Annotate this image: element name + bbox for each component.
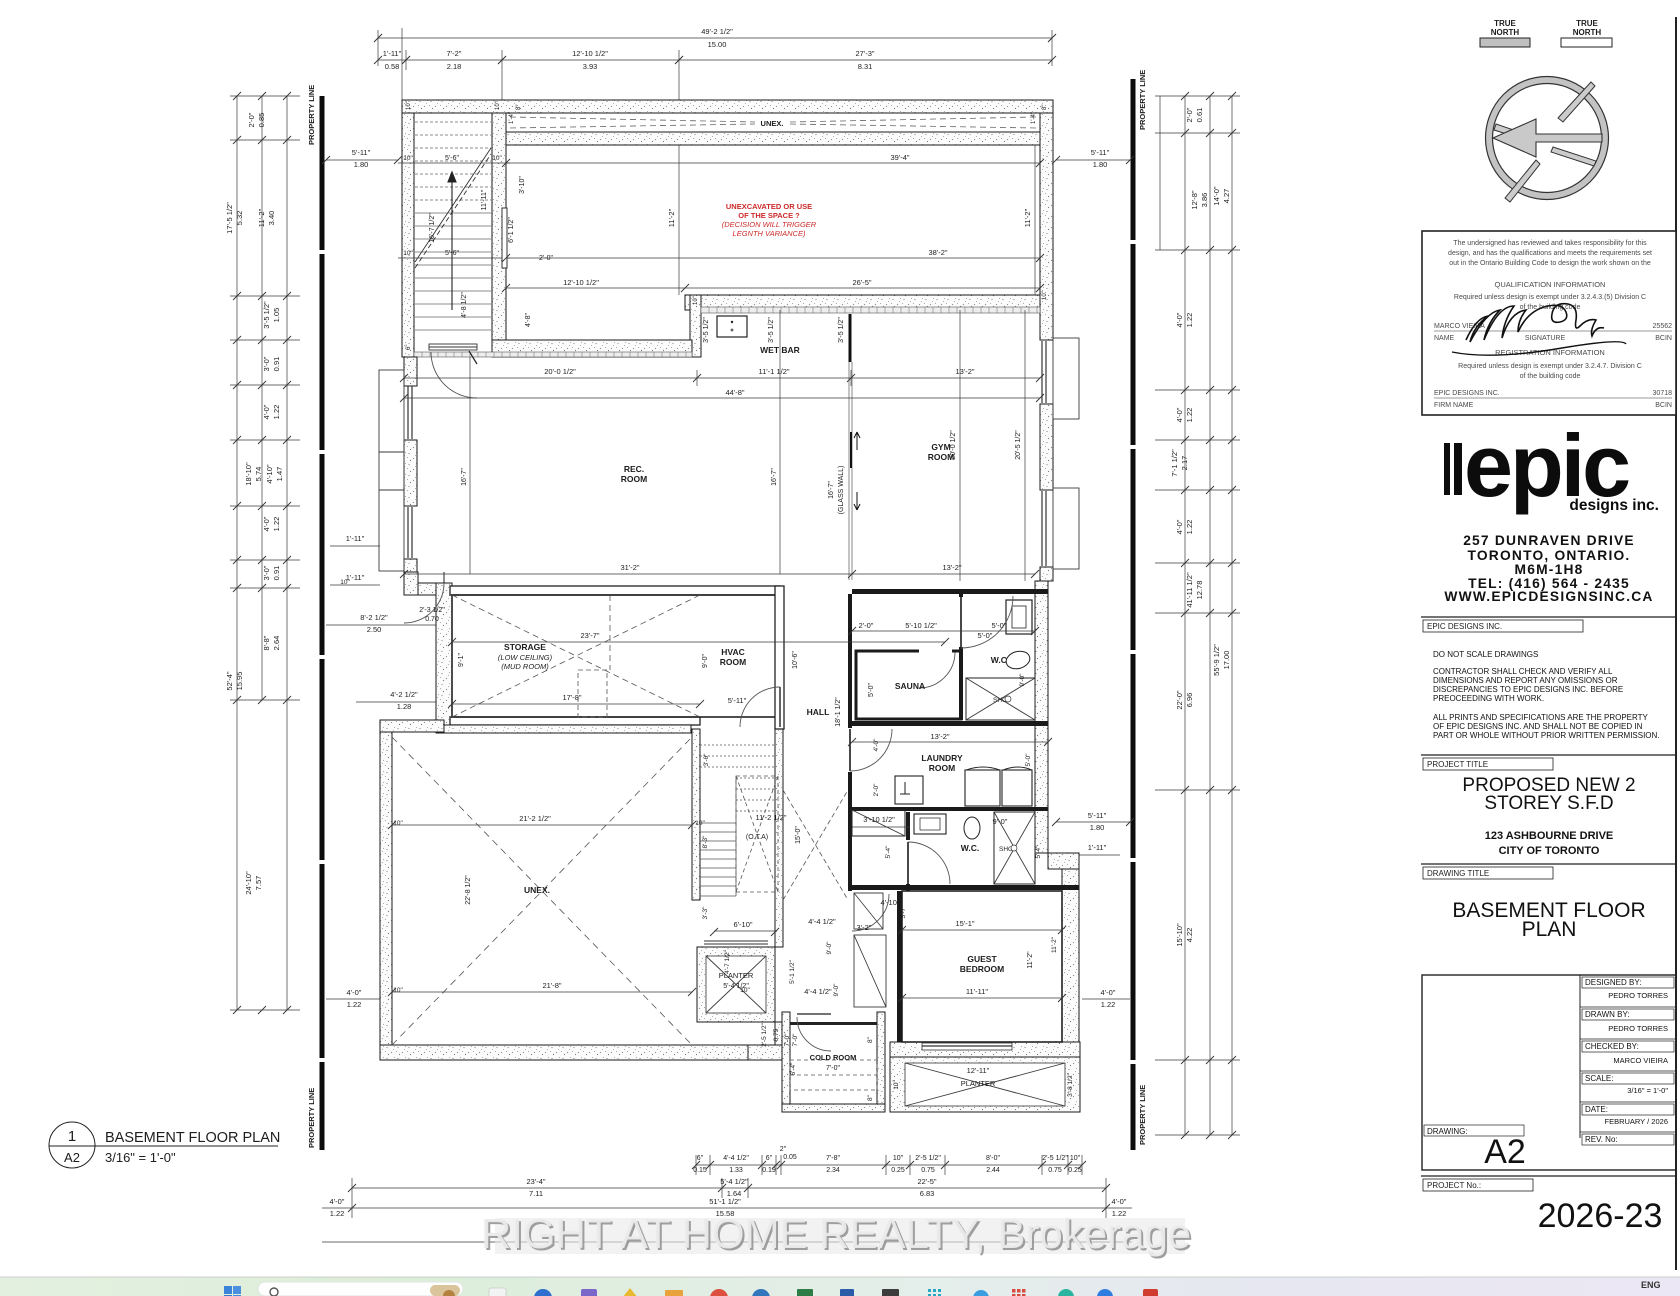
svg-text:2.18: 2.18	[447, 62, 462, 71]
svg-text:23'-4": 23'-4"	[526, 1177, 545, 1186]
svg-text:13'-2": 13'-2"	[930, 732, 949, 741]
svg-text:BASEMENT FLOOR PLAN: BASEMENT FLOOR PLAN	[105, 1130, 280, 1146]
svg-text:3/16" = 1'-0": 3/16" = 1'-0"	[1627, 1086, 1668, 1095]
svg-text:1.22: 1.22	[1185, 520, 1194, 535]
svg-text:2.34: 2.34	[826, 1167, 840, 1174]
svg-text:ENG: ENG	[1641, 1280, 1661, 1290]
svg-text:3'-0": 3'-0"	[262, 565, 271, 580]
svg-text:4'-8 1/2": 4'-8 1/2"	[461, 292, 468, 318]
svg-text:15'-10": 15'-10"	[1175, 923, 1184, 947]
svg-text:8'-2 1/2": 8'-2 1/2"	[360, 613, 388, 622]
svg-text:0.25: 0.25	[891, 1167, 905, 1174]
svg-text:PROPERTY LINE: PROPERTY LINE	[1138, 70, 1147, 130]
svg-text:44'-8": 44'-8"	[725, 388, 744, 397]
svg-text:W.C.: W.C.	[961, 843, 979, 853]
svg-text:of the building code: of the building code	[1520, 373, 1581, 380]
svg-text:4.27: 4.27	[1222, 189, 1231, 204]
svg-text:10": 10"	[403, 155, 413, 162]
svg-text:15'-0": 15'-0"	[795, 826, 802, 844]
svg-text:8": 8"	[1042, 105, 1048, 110]
svg-text:3.93: 3.93	[583, 62, 598, 71]
svg-text:20'-0 1/2": 20'-0 1/2"	[950, 430, 957, 460]
svg-text:23'-7": 23'-7"	[580, 631, 599, 640]
svg-text:PART OR WHOLE WITHOUT PRIOR WR: PART OR WHOLE WITHOUT PRIOR WRITTEN PERM…	[1433, 731, 1660, 740]
svg-text:8.31: 8.31	[858, 62, 873, 71]
svg-text:10": 10"	[495, 101, 501, 110]
svg-text:16'-7": 16'-7"	[771, 468, 778, 486]
svg-text:11'-2 1/2": 11'-2 1/2"	[755, 813, 786, 822]
svg-text:DATE:: DATE:	[1585, 1105, 1608, 1114]
svg-text:20'-5 1/2": 20'-5 1/2"	[1015, 430, 1022, 460]
svg-text:4'-4 1/2": 4'-4 1/2"	[804, 987, 832, 996]
svg-text:3'-5 1/2": 3'-5 1/2"	[838, 317, 845, 343]
svg-text:30718: 30718	[1653, 390, 1673, 397]
svg-text:3'-3": 3'-3"	[702, 906, 709, 920]
svg-text:RIGHT AT HOME REALTY, Brokerag: RIGHT AT HOME REALTY, Brokerage	[481, 1210, 1191, 1257]
svg-text:2'-0": 2'-0"	[859, 621, 874, 630]
svg-text:PEDRO TORRES: PEDRO TORRES	[1608, 991, 1668, 1000]
svg-text:TORONTO, ONTARIO.: TORONTO, ONTARIO.	[1468, 548, 1631, 563]
svg-text:5'-11": 5'-11"	[728, 696, 747, 705]
svg-text:5'-11": 5'-11"	[352, 148, 371, 157]
svg-text:ROOM: ROOM	[720, 657, 746, 667]
svg-text:10": 10"	[695, 820, 705, 827]
svg-text:BCIN: BCIN	[1655, 335, 1672, 342]
svg-text:123 ASHBOURNE DRIVE: 123 ASHBOURNE DRIVE	[1485, 830, 1614, 842]
svg-text:11'-2": 11'-2"	[257, 208, 266, 227]
svg-text:4'-4 1/2": 4'-4 1/2"	[723, 1155, 749, 1162]
svg-text:26'-5": 26'-5"	[852, 278, 871, 287]
svg-text:Required unless design is exem: Required unless design is exempt under 3…	[1458, 363, 1642, 370]
svg-text:11'-1 1/2": 11'-1 1/2"	[758, 367, 789, 376]
svg-text:5'-4": 5'-4"	[885, 845, 892, 859]
svg-text:REC.: REC.	[624, 464, 644, 474]
svg-text:ALL PRINTS AND SPECIFICATIONS: ALL PRINTS AND SPECIFICATIONS ARE THE PR…	[1433, 713, 1649, 722]
svg-text:20'-0 1/2": 20'-0 1/2"	[544, 367, 576, 376]
svg-text:(DECISION WILL TRIGGER: (DECISION WILL TRIGGER	[722, 220, 817, 229]
svg-text:7'-0": 7'-0"	[784, 1033, 791, 1047]
svg-text:PREOCEEDING WITH WORK.: PREOCEEDING WITH WORK.	[1433, 694, 1544, 703]
svg-text:4'-2 1/2": 4'-2 1/2"	[390, 690, 418, 699]
svg-text:1.22: 1.22	[347, 1000, 362, 1009]
svg-text:3/16" = 1'-0": 3/16" = 1'-0"	[105, 1150, 176, 1165]
svg-text:6": 6"	[766, 1155, 773, 1162]
svg-text:COLD ROOM: COLD ROOM	[810, 1053, 857, 1062]
svg-text:15.00: 15.00	[708, 40, 727, 49]
svg-text:4'-4 1/2": 4'-4 1/2"	[808, 917, 836, 926]
svg-text:EPIC DESIGNS INC.: EPIC DESIGNS INC.	[1427, 622, 1502, 631]
svg-text:6'-4": 6'-4"	[790, 1062, 797, 1076]
svg-text:9'-0": 9'-0"	[826, 941, 833, 955]
svg-text:1'-11": 1'-11"	[1088, 843, 1107, 852]
svg-text:0.05: 0.05	[783, 1154, 797, 1161]
svg-text:design, and has the qualificat: design, and has the qualifications and m…	[1448, 250, 1652, 257]
svg-text:MARCO VIEIRA: MARCO VIEIRA	[1613, 1056, 1668, 1065]
svg-text:DISCREPANCIES TO EPIC DESIGNS: DISCREPANCIES TO EPIC DESIGNS INC. BEFOR…	[1433, 685, 1623, 694]
svg-text:11'-2": 11'-2"	[1027, 951, 1034, 969]
svg-text:TRUE: TRUE	[1576, 19, 1598, 28]
svg-text:7'-0": 7'-0"	[792, 1033, 799, 1047]
svg-text:10": 10"	[1042, 291, 1048, 300]
svg-text:4'-0": 4'-0"	[262, 404, 271, 419]
svg-text:4'-7 1/2": 4'-7 1/2"	[724, 949, 731, 973]
svg-text:4.22: 4.22	[1185, 928, 1194, 943]
svg-text:5'-4 1/2": 5'-4 1/2"	[720, 1177, 748, 1186]
svg-text:1.28: 1.28	[397, 702, 412, 711]
svg-text:1.80: 1.80	[354, 160, 369, 169]
svg-text:6.96: 6.96	[1185, 693, 1194, 708]
svg-text:LEGNTH VARIANCE): LEGNTH VARIANCE)	[733, 229, 806, 238]
svg-text:2'-0": 2'-0"	[539, 255, 553, 262]
svg-text:15'-1": 15'-1"	[955, 919, 974, 928]
svg-text:4'-0": 4'-0"	[1101, 988, 1116, 997]
svg-text:GUEST: GUEST	[967, 954, 997, 964]
svg-text:REV. No:: REV. No:	[1585, 1135, 1618, 1144]
svg-text:12'-8": 12'-8"	[1190, 190, 1199, 209]
svg-text:13'-2": 13'-2"	[955, 367, 974, 376]
svg-text:31'-2": 31'-2"	[620, 563, 639, 572]
svg-text:3'-10 1/2": 3'-10 1/2"	[863, 815, 895, 824]
svg-text:FIRM NAME: FIRM NAME	[1434, 402, 1474, 409]
svg-text:5'-1 1/2": 5'-1 1/2"	[789, 959, 796, 983]
svg-text:HVAC: HVAC	[721, 647, 744, 657]
svg-text:ROOM: ROOM	[621, 474, 647, 484]
svg-text:BEDROOM: BEDROOM	[960, 964, 1004, 974]
svg-text:NAME: NAME	[1434, 335, 1455, 342]
svg-text:SCALE:: SCALE:	[1585, 1074, 1613, 1083]
svg-text:0.58: 0.58	[385, 62, 400, 71]
svg-text:38'-2": 38'-2"	[928, 248, 947, 257]
svg-text:1: 1	[68, 1128, 76, 1145]
svg-text:1.05: 1.05	[272, 308, 281, 323]
svg-text:8'-3": 8'-3"	[702, 835, 709, 849]
svg-text:The undersigned has reviewed a: The undersigned has reviewed and takes r…	[1453, 240, 1647, 247]
svg-text:11'-2": 11'-2"	[667, 208, 676, 227]
svg-text:2'-0": 2'-0"	[873, 783, 880, 797]
svg-text:13'-2": 13'-2"	[942, 563, 961, 572]
svg-text:10": 10"	[403, 250, 413, 257]
svg-text:12'-10 1/2": 12'-10 1/2"	[572, 49, 608, 58]
svg-text:A2: A2	[1484, 1133, 1526, 1171]
svg-text:1.80: 1.80	[1090, 823, 1105, 832]
svg-text:12'-10 1/2": 12'-10 1/2"	[563, 278, 599, 287]
svg-text:STOREY S.F.D: STOREY S.F.D	[1484, 793, 1613, 814]
svg-text:3'-7": 3'-7"	[900, 905, 907, 919]
svg-text:UNEX.: UNEX.	[761, 119, 784, 128]
svg-text:(O.T.A): (O.T.A)	[746, 834, 768, 841]
svg-text:3.86: 3.86	[1200, 193, 1209, 208]
svg-text:3.40: 3.40	[267, 211, 276, 226]
svg-text:10": 10"	[492, 155, 502, 162]
svg-text:10": 10"	[893, 1080, 900, 1090]
svg-text:OF THE SPACE ?: OF THE SPACE ?	[738, 211, 800, 220]
svg-text:11'-2": 11'-2"	[1051, 936, 1058, 953]
svg-text:DESIGNED BY:: DESIGNED BY:	[1585, 978, 1641, 987]
svg-text:6'-10": 6'-10"	[733, 920, 752, 929]
svg-text:8'-8": 8'-8"	[262, 635, 271, 650]
svg-text:1.22: 1.22	[1101, 1000, 1116, 1009]
svg-text:PROPERTY LINE: PROPERTY LINE	[307, 85, 316, 145]
svg-text:8'-0": 8'-0"	[986, 1155, 1000, 1162]
svg-text:7'-1 1/2": 7'-1 1/2"	[1170, 449, 1179, 477]
svg-text:12.78: 12.78	[1195, 581, 1204, 600]
svg-text:14'-0": 14'-0"	[1212, 186, 1221, 205]
svg-text:51'-1 1/2": 51'-1 1/2"	[709, 1197, 741, 1206]
svg-text:0.70: 0.70	[425, 616, 439, 623]
svg-text:1'-11": 1'-11"	[383, 49, 402, 58]
svg-text:1.22: 1.22	[272, 517, 281, 532]
svg-text:2.64: 2.64	[272, 636, 281, 651]
svg-text:4'-0": 4'-0"	[262, 516, 271, 531]
svg-text:designs inc.: designs inc.	[1569, 497, 1659, 514]
svg-text:12'-11": 12'-11"	[967, 1066, 990, 1075]
svg-text:9'-1": 9'-1"	[458, 653, 465, 667]
svg-text:6.83: 6.83	[920, 1189, 935, 1198]
svg-text:0.15: 0.15	[693, 1167, 707, 1174]
svg-text:SAUNA: SAUNA	[895, 681, 925, 691]
svg-text:PROPERTY LINE: PROPERTY LINE	[307, 1088, 316, 1148]
svg-text:5'-11": 5'-11"	[1088, 811, 1107, 820]
svg-text:24'-10": 24'-10"	[244, 871, 253, 895]
svg-text:4'-10": 4'-10"	[880, 898, 899, 907]
svg-text:8": 8"	[516, 105, 522, 110]
svg-text:11'-11": 11'-11"	[481, 189, 488, 210]
svg-text:1.22: 1.22	[330, 1209, 345, 1218]
svg-text:5'-6": 5'-6"	[445, 155, 459, 162]
svg-text:CONTRACTOR SHALL CHECK AND VER: CONTRACTOR SHALL CHECK AND VERIFY ALL	[1433, 667, 1613, 676]
svg-text:A2: A2	[64, 1150, 80, 1165]
svg-text:2'-5 1/2": 2'-5 1/2"	[1042, 1155, 1068, 1162]
svg-text:9'-0": 9'-0"	[1019, 673, 1026, 687]
svg-text:21'-2 1/2": 21'-2 1/2"	[519, 814, 551, 823]
svg-text:0.25: 0.25	[1068, 1167, 1082, 1174]
svg-text:2.17: 2.17	[1180, 456, 1189, 471]
svg-text:SIGNATURE: SIGNATURE	[1525, 335, 1566, 342]
svg-text:4'-0": 4'-0"	[1175, 407, 1184, 422]
svg-text:4'-0": 4'-0"	[873, 738, 880, 752]
svg-text:17.00: 17.00	[1222, 651, 1231, 670]
svg-text:1.80: 1.80	[1093, 160, 1108, 169]
svg-text:16'-7 1/2": 16'-7 1/2"	[429, 213, 436, 243]
svg-text:17'-8": 17'-8"	[562, 693, 581, 702]
svg-text:0.75: 0.75	[921, 1167, 935, 1174]
svg-text:7.11: 7.11	[529, 1189, 543, 1198]
svg-text:2'-5 1/2": 2'-5 1/2"	[915, 1155, 941, 1162]
svg-text:3'-8 1/2": 3'-8 1/2"	[1067, 1072, 1074, 1096]
svg-text:0.61: 0.61	[1195, 108, 1204, 123]
svg-text:9'-0": 9'-0"	[702, 654, 709, 668]
svg-text:22'-0": 22'-0"	[1175, 690, 1184, 709]
svg-text:DRAWN BY:: DRAWN BY:	[1585, 1010, 1630, 1019]
svg-text:10": 10"	[340, 579, 350, 586]
svg-text:5'-4": 5'-4"	[1035, 845, 1042, 859]
svg-text:5.32: 5.32	[235, 211, 244, 226]
svg-text:1'-11": 1'-11"	[346, 534, 365, 543]
svg-text:10": 10"	[893, 1155, 904, 1162]
svg-text:4'-8": 4'-8"	[525, 313, 532, 327]
svg-text:4'-0": 4'-0"	[347, 988, 362, 997]
svg-text:3'-6": 3'-6"	[703, 753, 710, 767]
svg-text:5'-10 1/2": 5'-10 1/2"	[905, 621, 937, 630]
svg-text:1.22: 1.22	[272, 405, 281, 420]
svg-text:1.22: 1.22	[1185, 408, 1194, 423]
svg-text:8": 8"	[867, 1094, 874, 1101]
svg-text:7'-2": 7'-2"	[447, 49, 462, 58]
svg-text:0.75: 0.75	[773, 1028, 780, 1041]
svg-text:257 DUNRAVEN DRIVE: 257 DUNRAVEN DRIVE	[1463, 533, 1635, 548]
svg-text:4'-0": 4'-0"	[330, 1197, 345, 1206]
svg-text:55'-9 1/2": 55'-9 1/2"	[1212, 644, 1221, 676]
svg-text:WWW.EPICDESIGNSINC.CA: WWW.EPICDESIGNSINC.CA	[1444, 589, 1653, 604]
svg-text:CHECKED BY:: CHECKED BY:	[1585, 1042, 1639, 1051]
svg-text:11'-2": 11'-2"	[1023, 208, 1032, 227]
svg-text:2026-23: 2026-23	[1538, 1197, 1663, 1235]
svg-text:3'-2": 3'-2"	[857, 923, 872, 932]
svg-text:PROPERTY LINE: PROPERTY LINE	[1138, 1085, 1147, 1145]
svg-text:8": 8"	[867, 1036, 874, 1043]
svg-text:0.91: 0.91	[272, 566, 281, 581]
svg-text:5'-4 1/2": 5'-4 1/2"	[723, 983, 749, 990]
svg-text:FEBRUARY / 2026: FEBRUARY / 2026	[1604, 1117, 1668, 1126]
svg-text:4'-10": 4'-10"	[265, 464, 274, 483]
svg-text:UNEXCAVATED OR USE: UNEXCAVATED OR USE	[726, 202, 812, 211]
svg-text:2'-0": 2'-0"	[1185, 107, 1194, 122]
svg-text:3'-0": 3'-0"	[262, 356, 271, 371]
svg-text:6'-1 1/2": 6'-1 1/2"	[508, 217, 515, 243]
svg-text:ROOM: ROOM	[929, 763, 955, 773]
svg-text:M6M-1H8: M6M-1H8	[1515, 562, 1584, 577]
svg-text:27'-3": 27'-3"	[855, 49, 874, 58]
svg-text:1'-4": 1'-4"	[1031, 112, 1037, 124]
svg-text:2": 2"	[780, 1146, 787, 1153]
svg-text:PROJECT TITLE: PROJECT TITLE	[1427, 760, 1488, 769]
svg-text:(LOW CEILING): (LOW CEILING)	[498, 653, 553, 662]
svg-text:BCIN: BCIN	[1655, 402, 1672, 409]
svg-text:LAUNDRY: LAUNDRY	[921, 753, 963, 763]
svg-text:18'-10": 18'-10"	[244, 462, 253, 486]
svg-text:41'-11 1/2": 41'-11 1/2"	[1185, 572, 1194, 608]
svg-text:3'-10": 3'-10"	[519, 176, 526, 194]
svg-text:10": 10"	[406, 101, 412, 110]
svg-text:49'-2 1/2": 49'-2 1/2"	[701, 27, 733, 36]
svg-text:39'-4": 39'-4"	[890, 153, 909, 162]
svg-text:5'-0": 5'-0"	[992, 621, 1007, 630]
svg-text:Required unless design is exem: Required unless design is exempt under 3…	[1454, 294, 1646, 301]
svg-text:STORAGE: STORAGE	[504, 642, 546, 652]
svg-text:22'-5": 22'-5"	[917, 1177, 936, 1186]
svg-text:17'-5 1/2": 17'-5 1/2"	[225, 202, 234, 234]
svg-text:16'-7": 16'-7"	[828, 481, 835, 499]
svg-text:9'-0": 9'-0"	[993, 817, 1008, 826]
svg-text:(GLASS WALL): (GLASS WALL)	[838, 466, 845, 515]
svg-text:(MUD ROOM): (MUD ROOM)	[501, 662, 549, 671]
svg-text:25562: 25562	[1653, 323, 1673, 330]
svg-text:PLAN: PLAN	[1522, 918, 1577, 941]
svg-text:PROJECT No.:: PROJECT No.:	[1427, 1181, 1481, 1190]
svg-text:5'-11": 5'-11"	[1091, 148, 1110, 157]
svg-text:NORTH: NORTH	[1573, 28, 1602, 37]
svg-text:2.50: 2.50	[367, 625, 382, 634]
svg-text:5.74: 5.74	[254, 467, 263, 482]
svg-text:18'-1 1/2": 18'-1 1/2"	[835, 697, 842, 727]
svg-text:0.19: 0.19	[762, 1167, 776, 1174]
svg-text:5'-0": 5'-0"	[1025, 753, 1032, 767]
svg-text:1'-4": 1'-4"	[509, 112, 515, 124]
svg-text:DRAWING:: DRAWING:	[1427, 1127, 1468, 1136]
svg-text:DRAWING TITLE: DRAWING TITLE	[1427, 869, 1489, 878]
svg-text:16'-7": 16'-7"	[461, 468, 468, 486]
svg-text:3'-5 1/2": 3'-5 1/2"	[262, 301, 271, 329]
svg-text:2'-0": 2'-0"	[247, 112, 256, 127]
svg-text:1.22: 1.22	[1185, 313, 1194, 328]
svg-text:QUALIFICATION INFORMATION: QUALIFICATION INFORMATION	[1495, 280, 1606, 289]
svg-text:52'-4": 52'-4"	[225, 671, 234, 690]
svg-text:5'-0": 5'-0"	[868, 683, 875, 697]
svg-text:DO NOT SCALE DRAWINGS: DO NOT SCALE DRAWINGS	[1433, 650, 1538, 659]
svg-text:22'-8 1/2": 22'-8 1/2"	[465, 875, 472, 905]
svg-text:10'-6": 10'-6"	[792, 651, 799, 669]
svg-text:CITY OF TORONTO: CITY OF TORONTO	[1499, 845, 1600, 857]
svg-text:4'-0": 4'-0"	[1175, 519, 1184, 534]
svg-text:PLANTER: PLANTER	[961, 1079, 996, 1088]
svg-text:5'-6": 5'-6"	[445, 250, 459, 257]
svg-text:0.85: 0.85	[257, 113, 266, 128]
svg-text:HALL: HALL	[807, 707, 830, 717]
svg-text:3'-5 1/2": 3'-5 1/2"	[703, 317, 710, 343]
svg-text:6": 6"	[406, 345, 412, 350]
svg-text:10": 10"	[393, 820, 403, 827]
svg-text:2'-3 1/2": 2'-3 1/2"	[419, 607, 445, 614]
svg-text:GYM: GYM	[931, 442, 950, 452]
svg-text:6": 6"	[697, 1155, 704, 1162]
svg-text:out in the Ontario Building Co: out in the Ontario Building Code to desi…	[1449, 260, 1651, 267]
svg-text:7'-0": 7'-0"	[826, 1065, 840, 1072]
svg-text:DIMENSIONS AND REPORT ANY OMIS: DIMENSIONS AND REPORT ANY OMISSIONS OR	[1433, 676, 1618, 685]
svg-text:OF EPIC DESIGNS INC. AND SHALL: OF EPIC DESIGNS INC. AND SHALL NOT BE CO…	[1433, 722, 1643, 731]
svg-text:4'-0": 4'-0"	[1175, 312, 1184, 327]
svg-text:TRUE: TRUE	[1494, 19, 1516, 28]
svg-text:10": 10"	[693, 296, 699, 305]
svg-text:15.95: 15.95	[235, 672, 244, 691]
svg-text:11'-11": 11'-11"	[966, 987, 989, 996]
svg-text:9'-0": 9'-0"	[833, 983, 840, 997]
svg-text:7'-8": 7'-8"	[826, 1155, 840, 1162]
svg-text:2'-5 1/2": 2'-5 1/2"	[761, 1022, 768, 1046]
svg-text:1.47: 1.47	[275, 467, 284, 482]
svg-text:10": 10"	[393, 987, 403, 994]
svg-text:EPIC DESIGNS INC.: EPIC DESIGNS INC.	[1434, 390, 1500, 397]
svg-text:7.57: 7.57	[254, 876, 263, 891]
svg-text:3'-5 1/2": 3'-5 1/2"	[768, 317, 775, 343]
svg-text:0.75: 0.75	[1048, 1167, 1062, 1174]
svg-text:0.91: 0.91	[272, 357, 281, 372]
svg-text:UNEX.: UNEX.	[524, 885, 550, 895]
svg-text:21'-8": 21'-8"	[542, 981, 561, 990]
svg-text:PEDRO TORRES: PEDRO TORRES	[1608, 1024, 1668, 1033]
svg-text:2.44: 2.44	[986, 1167, 1000, 1174]
svg-text:1.33: 1.33	[729, 1167, 743, 1174]
svg-text:4'-0": 4'-0"	[1112, 1197, 1127, 1206]
svg-text:NORTH: NORTH	[1491, 28, 1520, 37]
